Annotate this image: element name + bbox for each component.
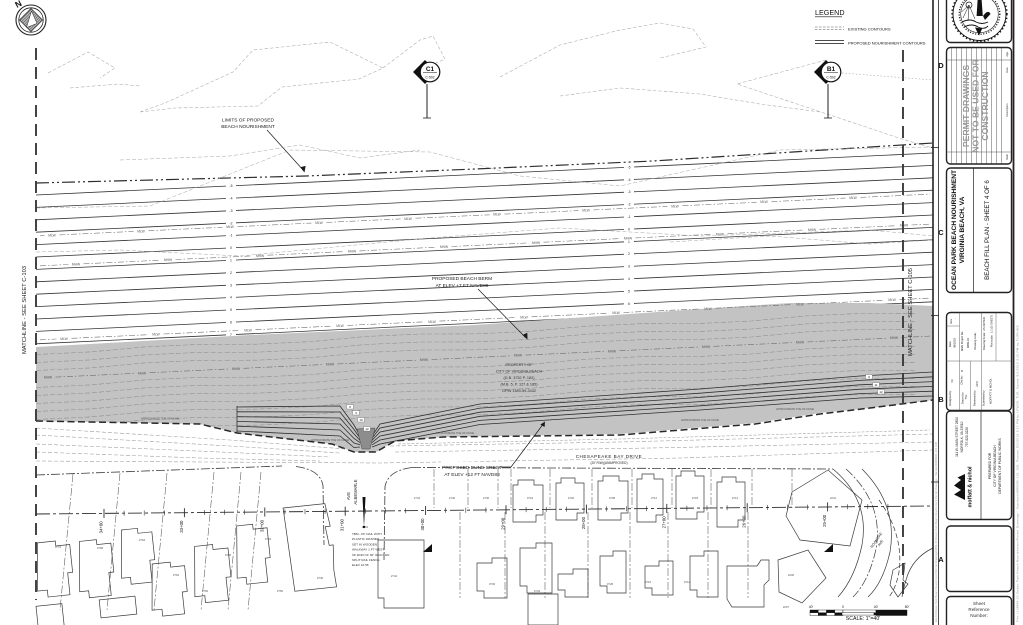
svg-text:APPROXIMATE TOE OF DUNE: APPROXIMATE TOE OF DUNE	[776, 407, 814, 411]
svg-text:SET IN WOODEN: SET IN WOODEN	[352, 542, 377, 546]
svg-text:MLW: MLW	[244, 328, 252, 332]
svg-text:Description: Description	[1005, 103, 1009, 117]
svg-text:GPIN 1489-59-3432: GPIN 1489-59-3432	[502, 389, 536, 393]
svg-text:08/2019: 08/2019	[953, 338, 957, 348]
svg-text:28+00: 28+00	[581, 516, 586, 529]
svg-text:MHW: MHW	[440, 245, 449, 249]
svg-text:3760: 3760	[202, 589, 209, 593]
svg-text:M&N Project No.: M&N Project No.	[960, 331, 964, 351]
svg-text:MHW: MHW	[44, 376, 53, 380]
svg-text:3712: 3712	[651, 496, 658, 500]
svg-text:BEACH NOURISHMENT: BEACH NOURISHMENT	[221, 124, 275, 130]
svg-text:Plot scale:: Plot scale:	[990, 335, 994, 348]
svg-text:(M.B. 5, P. 127 & 185): (M.B. 5, P. 127 & 185)	[500, 383, 538, 387]
svg-text:MLW: MLW	[520, 316, 528, 320]
svg-text:C-502: C-502	[826, 76, 835, 80]
svg-text:1: 1	[230, 259, 232, 263]
svg-text:Drawn by:: Drawn by:	[961, 392, 965, 404]
svg-text:3708: 3708	[609, 496, 616, 500]
svg-text:CHESAPEAKE BAY DRIVE: CHESAPEAKE BAY DRIVE	[576, 454, 643, 459]
svg-text:10: 10	[359, 418, 363, 422]
svg-text:MHW: MHW	[256, 254, 265, 258]
svg-text:3712: 3712	[684, 580, 691, 584]
svg-text:MHW: MHW	[716, 232, 725, 236]
svg-text:MHW: MHW	[808, 228, 817, 232]
svg-text:Reference: Reference	[968, 607, 990, 612]
svg-text:MLW: MLW	[704, 307, 712, 311]
svg-text:Ele-10\Ocean Park Beach Nouris: Ele-10\Ocean Park Beach Nourishment\Perm…	[934, 442, 938, 622]
svg-text:40': 40'	[874, 605, 879, 609]
svg-text:AVE: AVE	[346, 492, 351, 500]
svg-text:MHW: MHW	[326, 363, 335, 367]
svg-text:Date:: Date:	[948, 341, 952, 348]
svg-text:SCALE: 1"=40': SCALE: 1"=40'	[846, 616, 880, 622]
svg-text:MLW: MLW	[849, 196, 857, 200]
svg-text:0: 0	[230, 246, 232, 250]
svg-text:MHW: MHW	[420, 358, 429, 362]
svg-text:PREPARED FOR: PREPARED FOR	[988, 452, 992, 479]
svg-text:MLW: MLW	[671, 204, 679, 208]
svg-text:3764: 3764	[139, 538, 146, 542]
svg-text:AS NOTED: AS NOTED	[982, 317, 986, 331]
svg-text:4: 4	[230, 296, 232, 300]
svg-text:-3: -3	[229, 209, 232, 213]
svg-text:Mark: Mark	[1005, 153, 1009, 159]
svg-text:OCEAN PARK BEACH NOURISHMENT: OCEAN PARK BEACH NOURISHMENT	[951, 170, 958, 290]
svg-text:5: 5	[230, 308, 232, 312]
svg-text:3750: 3750	[277, 589, 284, 593]
svg-text:OF END OF 30" WOODEN: OF END OF 30" WOODEN	[352, 553, 389, 557]
svg-text:MLW: MLW	[796, 303, 804, 307]
svg-text:MHW: MHW	[348, 250, 357, 254]
svg-text:3720: 3720	[568, 496, 575, 500]
svg-text:Rev.: Rev.	[949, 318, 953, 324]
svg-text:31+00: 31+00	[340, 519, 345, 532]
svg-text:TBM - PK NAIL WITH: TBM - PK NAIL WITH	[352, 532, 382, 536]
svg-text:-: -	[954, 317, 957, 318]
svg-text:-4: -4	[627, 178, 630, 182]
svg-text:27+00: 27+00	[661, 516, 666, 529]
svg-text:25+00: 25+00	[822, 514, 827, 527]
svg-text:3716: 3716	[645, 580, 652, 584]
svg-text:MLW: MLW	[48, 234, 56, 238]
svg-text:MLW: MLW	[60, 337, 68, 341]
svg-text:33+00: 33+00	[179, 520, 184, 533]
svg-text:80': 80'	[905, 605, 910, 609]
svg-text:26+00: 26+00	[742, 515, 747, 528]
svg-text:MLW: MLW	[226, 225, 234, 229]
svg-text:File: U:\9889-10 Ocean Park Be: File: U:\9889-10 Ocean Park Beach Nouris…	[1016, 325, 1020, 622]
svg-text:MHW: MHW	[532, 241, 541, 245]
svg-text:MHW: MHW	[900, 224, 909, 228]
svg-text:MLW: MLW	[612, 311, 620, 315]
svg-text:2740: 2740	[449, 496, 456, 500]
svg-text:3746: 3746	[317, 576, 324, 580]
svg-text:NORFOLK, VA 23510: NORFOLK, VA 23510	[960, 421, 964, 452]
svg-text:2744: 2744	[391, 574, 398, 578]
svg-text:3762: 3762	[173, 573, 180, 577]
svg-text:Ckd by:: Ckd by:	[960, 375, 964, 384]
svg-text:MLW: MLW	[315, 221, 323, 225]
svg-text:2241: 2241	[830, 496, 837, 500]
svg-text:-4: -4	[229, 197, 232, 201]
svg-text:MOFFATT & NICHOL: MOFFATT & NICHOL	[989, 378, 993, 404]
svg-text:AT ELEV +12 FT NAVD88: AT ELEV +12 FT NAVD88	[444, 472, 500, 478]
svg-text:EXISTING CONTOURS: EXISTING CONTOURS	[848, 27, 891, 32]
svg-text:APPROXIMATE TOE OF DUNE: APPROXIMATE TOE OF DUNE	[141, 417, 179, 421]
svg-text:12: 12	[879, 390, 883, 394]
svg-text:PROPOSED BEACH BERM: PROPOSED BEACH BERM	[432, 276, 492, 282]
svg-text:A: A	[938, 555, 944, 564]
svg-text:MHW: MHW	[702, 345, 711, 349]
svg-text:MLW: MLW	[493, 213, 501, 217]
svg-text:Sheet: Sheet	[973, 601, 986, 606]
svg-text:Date: Date	[1005, 67, 1009, 73]
svg-text:SPLIT RAIL FENCE: SPLIT RAIL FENCE	[352, 558, 380, 562]
svg-text:2736: 2736	[483, 496, 490, 500]
svg-text:VC: VC	[950, 379, 954, 383]
svg-text:MLW: MLW	[428, 320, 436, 324]
svg-text:2: 2	[628, 252, 630, 256]
svg-text:3: 3	[628, 265, 630, 269]
svg-text:MLW: MLW	[760, 200, 768, 204]
svg-text:MLW: MLW	[152, 333, 160, 337]
svg-text:MHW: MHW	[624, 237, 633, 241]
svg-text:DEPARTMENT OF PUBLIC WORKS: DEPARTMENT OF PUBLIC WORKS	[998, 437, 1002, 493]
svg-text:(20' R/W)(UNIMPROVED): (20' R/W)(UNIMPROVED)	[590, 461, 627, 465]
svg-text:32+00: 32+00	[259, 519, 264, 532]
svg-text:APU: APU	[975, 381, 979, 387]
svg-text:-5: -5	[627, 165, 630, 169]
svg-text:MHW: MHW	[232, 367, 241, 371]
svg-text:757-620-0220: 757-620-0220	[965, 427, 969, 447]
svg-text:1:1 (D SHEET): 1:1 (D SHEET)	[990, 315, 994, 333]
svg-text:MLW: MLW	[404, 217, 412, 221]
svg-text:Drawing Scale:: Drawing Scale:	[982, 332, 986, 350]
svg-text:MLW: MLW	[336, 324, 344, 328]
svg-text:Drawing code:: Drawing code:	[973, 332, 977, 349]
svg-text:Designed by:: Designed by:	[948, 390, 952, 406]
svg-text:34+00: 34+00	[99, 521, 104, 534]
svg-text:3772: 3772	[55, 545, 62, 549]
svg-text:3714: 3714	[732, 496, 739, 500]
svg-text:Submitted by:: Submitted by:	[982, 390, 986, 407]
svg-text:MATCHLINE - SEE SHEET C-105: MATCHLINE - SEE SHEET C-105	[908, 268, 914, 356]
svg-text:B1: B1	[827, 66, 836, 73]
svg-text:MATCHLINE - SEE SHEET C-103: MATCHLINE - SEE SHEET C-103	[22, 266, 28, 354]
svg-text:APPROXIMATE TOE OF DUNE: APPROXIMATE TOE OF DUNE	[311, 438, 349, 442]
svg-text:CONSTRUCTION: CONSTRUCTION	[980, 71, 990, 140]
svg-text:(D.B. 3752 P. 182): (D.B. 3752 P. 182)	[504, 376, 536, 380]
svg-text:MHW: MHW	[138, 371, 147, 375]
svg-text:3734: 3734	[534, 589, 541, 593]
svg-text:5: 5	[628, 289, 630, 293]
svg-text:MLW: MLW	[582, 209, 590, 213]
svg-text:-1: -1	[627, 215, 630, 219]
svg-text:0: 0	[842, 605, 844, 609]
svg-text:3724: 3724	[527, 496, 534, 500]
svg-text:-5: -5	[229, 184, 232, 188]
svg-text:CITY OF VIRGINIA BEACH: CITY OF VIRGINIA BEACH	[993, 445, 997, 487]
svg-text:PROPOSED NOURISHMENT CONTOURS: PROPOSED NOURISHMENT CONTOURS	[848, 40, 926, 45]
svg-text:VIRGINIA BEACH, VA: VIRGINIA BEACH, VA	[959, 196, 966, 263]
svg-text:3728: 3728	[607, 582, 614, 586]
svg-text:3: 3	[230, 283, 232, 287]
svg-text:AT ELEV +7 FT NAVD88: AT ELEV +7 FT NAVD88	[436, 283, 489, 289]
svg-text:MHW: MHW	[514, 354, 523, 358]
svg-text:WALKWAY 1 FT WEST: WALKWAY 1 FT WEST	[352, 548, 384, 552]
svg-text:-3: -3	[627, 190, 630, 194]
svg-text:App.: App.	[1005, 51, 1009, 57]
svg-text:MHW: MHW	[72, 262, 81, 266]
svg-text:MLW: MLW	[888, 298, 896, 302]
svg-text:2: 2	[230, 271, 232, 275]
svg-text:MHW: MHW	[608, 349, 617, 353]
svg-text:Number:: Number:	[970, 613, 988, 618]
svg-text:CITY OF VIRGINIA BEACH: CITY OF VIRGINIA BEACH	[496, 370, 543, 374]
svg-text:6: 6	[628, 302, 630, 306]
svg-text:C-502: C-502	[425, 76, 434, 80]
svg-text:APPROXIMATE TOE OF DUNE: APPROXIMATE TOE OF DUNE	[436, 431, 474, 435]
svg-text:3768: 3768	[97, 546, 104, 550]
svg-text:LEGEND: LEGEND	[815, 8, 845, 17]
svg-text:TSL: TSL	[964, 394, 968, 399]
svg-text:B: B	[938, 395, 944, 404]
svg-text:C: C	[938, 228, 944, 237]
svg-text:C1: C1	[426, 66, 435, 73]
svg-text:3730: 3730	[489, 582, 496, 586]
svg-text:D: D	[938, 61, 944, 70]
svg-text:-2: -2	[627, 203, 630, 207]
svg-text:111 W. MAIN STREET 2800: 111 W. MAIN STREET 2800	[955, 417, 959, 457]
svg-text:3718: 3718	[692, 496, 699, 500]
svg-text:ELEV 10.58: ELEV 10.58	[352, 563, 369, 567]
svg-text:0: 0	[628, 227, 630, 231]
svg-text:2744: 2744	[414, 496, 421, 500]
svg-text:30+00: 30+00	[420, 518, 425, 531]
svg-text:PLASTIC WASHER: PLASTIC WASHER	[352, 537, 380, 541]
svg-text:PROPERTY OF: PROPERTY OF	[505, 363, 533, 367]
svg-text:4: 4	[628, 277, 630, 281]
svg-text:B: B	[960, 370, 964, 372]
svg-text:APPROXIMATE TOE OF DUNE: APPROXIMATE TOE OF DUNE	[681, 418, 719, 422]
svg-text:LIMITS OF PROPOSED: LIMITS OF PROPOSED	[222, 118, 275, 124]
svg-text:NOT TO BE USED FOR: NOT TO BE USED FOR	[971, 59, 981, 153]
svg-text:2207: 2207	[783, 605, 790, 609]
svg-text:9889-19: 9889-19	[966, 338, 970, 348]
svg-text:moffatt & nichol: moffatt & nichol	[968, 466, 974, 508]
svg-text:PERMIT DRAWINGS: PERMIT DRAWINGS	[961, 65, 971, 147]
svg-text:40': 40'	[809, 605, 814, 609]
svg-text:11: 11	[874, 383, 877, 387]
svg-text:3754: 3754	[265, 537, 272, 541]
svg-text:-1: -1	[229, 234, 232, 238]
svg-text:12: 12	[365, 427, 369, 431]
svg-text:MHW: MHW	[164, 258, 173, 262]
svg-text:BEACH FILL PLAN - SHEET 4 OF 6: BEACH FILL PLAN - SHEET 4 OF 6	[984, 180, 991, 280]
svg-text:Reviewed by:: Reviewed by:	[973, 390, 977, 406]
svg-text:6: 6	[230, 321, 232, 325]
svg-text:MHW: MHW	[796, 341, 805, 345]
svg-text:MHW: MHW	[890, 336, 899, 340]
svg-text:MLW: MLW	[137, 229, 145, 233]
svg-text:3758: 3758	[225, 553, 232, 557]
svg-text:2206: 2206	[788, 573, 795, 577]
svg-text:ALBEMARLE: ALBEMARLE	[353, 479, 358, 504]
